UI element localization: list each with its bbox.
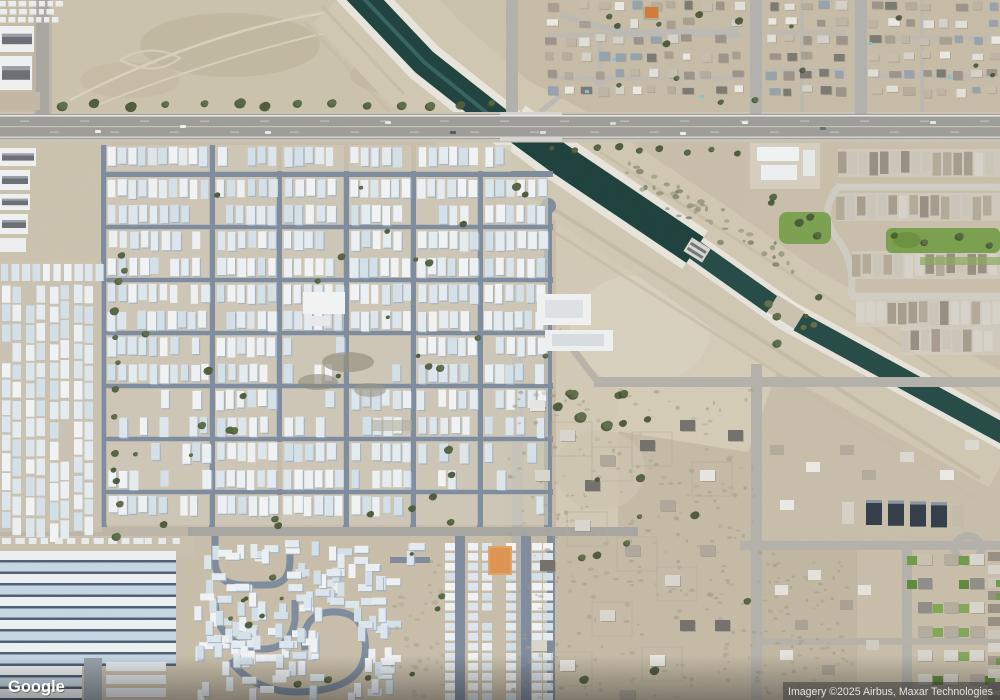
svg-text:Google: Google [8,678,65,696]
svg-text:Imagery ©2025 Airbus, Maxar Te: Imagery ©2025 Airbus, Maxar Technologies [788,686,993,698]
